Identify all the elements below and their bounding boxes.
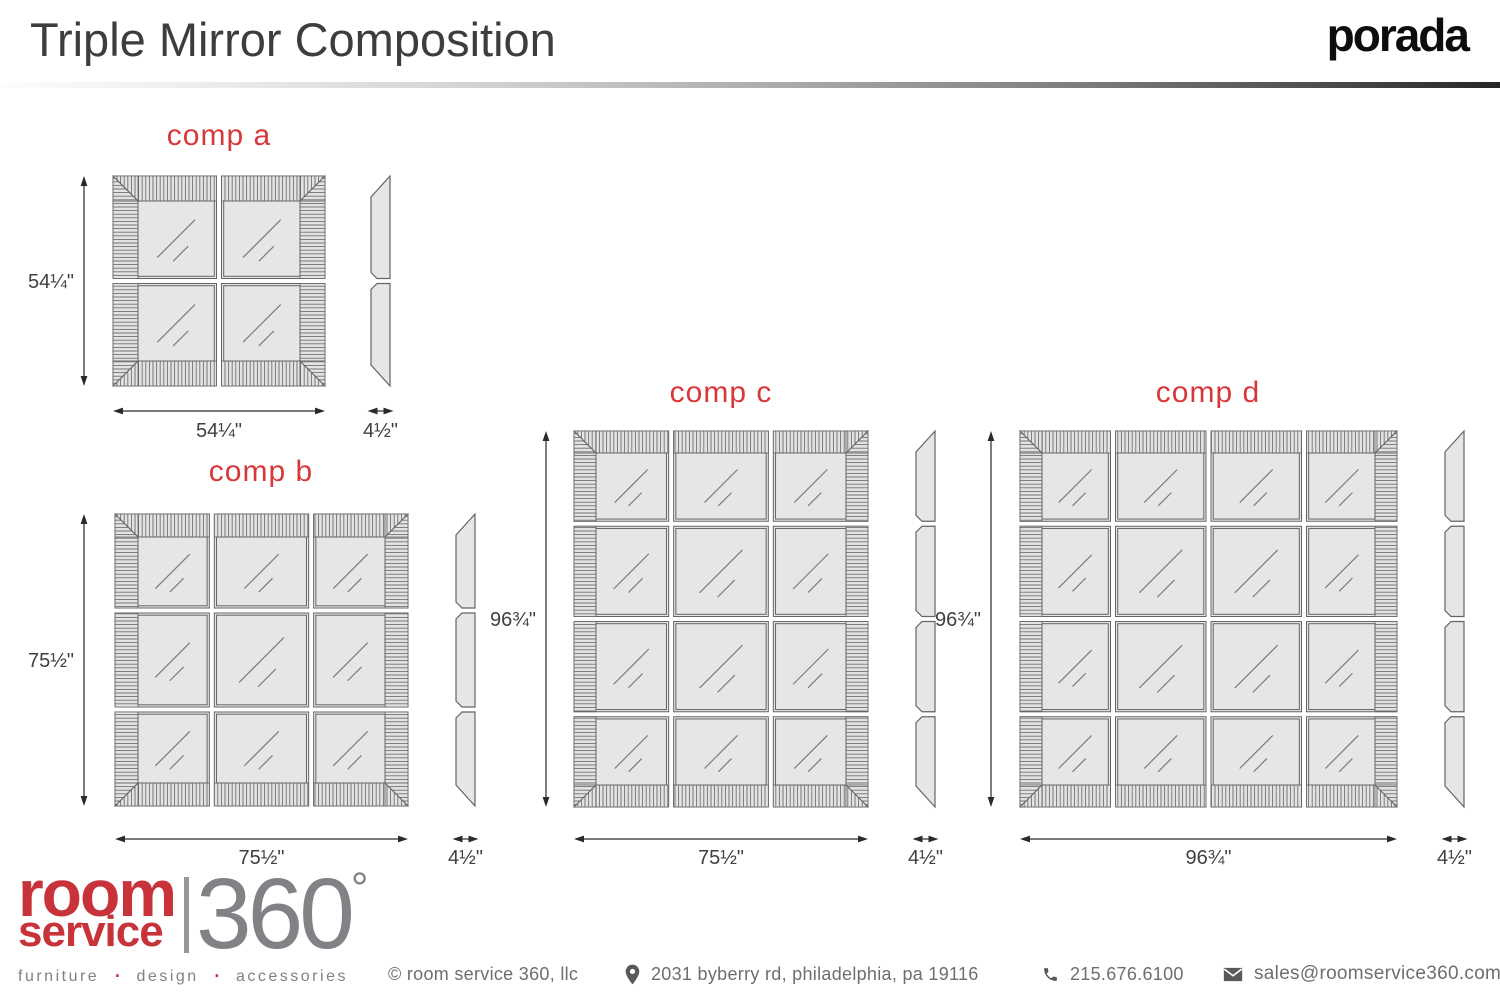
svg-text:4½": 4½" <box>448 847 483 869</box>
svg-text:4½": 4½" <box>363 420 398 442</box>
address-item: 2031 byberry rd, philadelphia, pa 19116 <box>625 960 979 988</box>
envelope-icon <box>1223 967 1243 982</box>
map-pin-icon <box>625 964 640 985</box>
tagline-word: design <box>137 968 199 986</box>
svg-text:75½": 75½" <box>28 650 74 672</box>
tagline-separator-dot: · <box>115 966 121 987</box>
tagline-word: accessories <box>236 968 348 986</box>
comp-a-label: comp a <box>167 119 271 153</box>
email-item: sales@roomservice360.com <box>1223 960 1500 988</box>
logo-word-service: service <box>18 914 163 950</box>
logo-tagline: furniture · design · accessories <box>18 966 348 987</box>
svg-text:96¾": 96¾" <box>1185 847 1231 869</box>
svg-text:4½": 4½" <box>908 847 943 869</box>
logo-divider-bar <box>184 877 189 953</box>
email-text: sales@roomservice360.com <box>1254 963 1500 985</box>
svg-text:96¾": 96¾" <box>490 609 536 631</box>
copyright-text: © room service 360, llc <box>388 960 578 988</box>
svg-text:4½": 4½" <box>1437 847 1472 869</box>
svg-text:54¼": 54¼" <box>28 271 74 293</box>
phone-item: 215.676.6100 <box>1042 960 1184 988</box>
roomservice360-logo: room service 360 ° <box>18 874 368 954</box>
tagline-separator-dot: · <box>214 966 220 987</box>
address-text: 2031 byberry rd, philadelphia, pa 19116 <box>651 964 979 985</box>
comp-c-label: comp c <box>670 376 773 410</box>
phone-text: 215.676.6100 <box>1070 964 1184 985</box>
svg-text:75½": 75½" <box>698 847 744 869</box>
degree-symbol: ° <box>351 878 369 900</box>
phone-handset-icon <box>1042 966 1059 983</box>
svg-text:96¾": 96¾" <box>935 609 981 631</box>
comp-b-label: comp b <box>209 455 313 489</box>
svg-text:54¼": 54¼" <box>196 420 242 442</box>
tagline-word: furniture <box>18 968 99 986</box>
logo-number-360: 360 <box>196 874 351 954</box>
spec-sheet-page: Triple Mirror Composition porada 54¼"54¼… <box>0 0 1500 1000</box>
comp-d-label: comp d <box>1156 376 1260 410</box>
